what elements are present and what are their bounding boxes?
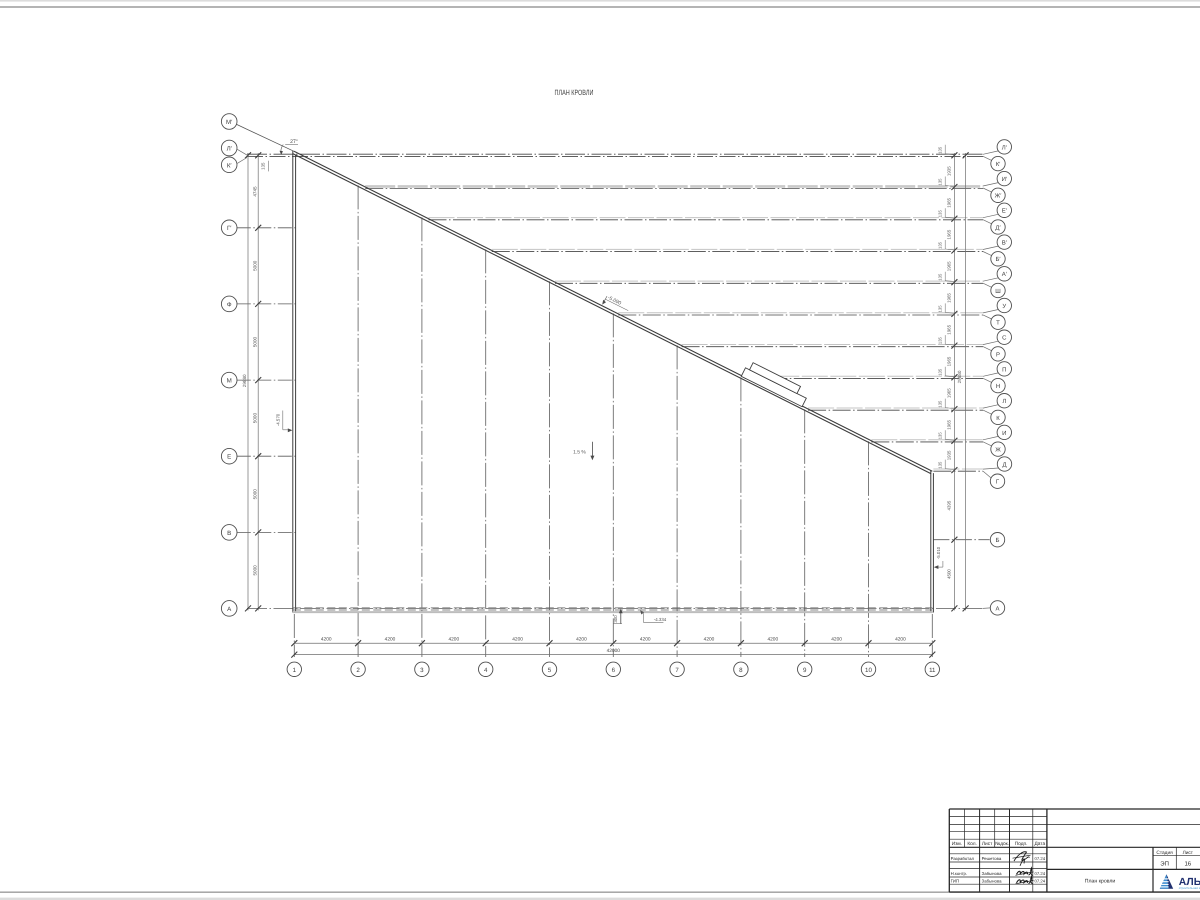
svg-text:1935: 1935 bbox=[947, 166, 952, 176]
svg-text:Н.контр.: Н.контр. bbox=[951, 871, 968, 876]
svg-text:Изм.: Изм. bbox=[952, 841, 962, 847]
svg-text:5: 5 bbox=[548, 667, 552, 674]
svg-text:Д′: Д′ bbox=[995, 224, 1001, 231]
svg-text:4200: 4200 bbox=[767, 636, 778, 642]
svg-text:Е: Е bbox=[227, 454, 231, 461]
svg-text:5000: 5000 bbox=[252, 565, 257, 576]
svg-text:1965: 1965 bbox=[947, 197, 952, 207]
svg-text:Д: Д bbox=[1002, 461, 1006, 468]
svg-text:ПЛАН КРОВЛИ: ПЛАН КРОВЛИ bbox=[555, 88, 594, 97]
svg-text:строительная компания: строительная компания bbox=[1179, 886, 1200, 890]
svg-text:4200: 4200 bbox=[448, 636, 459, 642]
svg-text:135: 135 bbox=[938, 178, 943, 186]
svg-text:Н: Н bbox=[996, 383, 1000, 390]
svg-text:-4.570: -4.570 bbox=[275, 413, 280, 426]
svg-text:Забынова: Забынова bbox=[982, 871, 1003, 876]
svg-text:Е′: Е′ bbox=[1002, 208, 1008, 215]
svg-text:135: 135 bbox=[938, 305, 943, 313]
svg-text:Стадия: Стадия bbox=[1156, 850, 1173, 856]
svg-text:11: 11 bbox=[929, 667, 936, 674]
svg-text:4200: 4200 bbox=[640, 636, 651, 642]
svg-text:П: П bbox=[1002, 366, 1006, 373]
svg-text:ЭП: ЭП bbox=[1160, 861, 1169, 868]
svg-text:135: 135 bbox=[261, 162, 266, 170]
svg-text:135: 135 bbox=[938, 336, 943, 344]
svg-text:135: 135 bbox=[938, 146, 943, 154]
svg-text:1965: 1965 bbox=[947, 293, 952, 303]
svg-text:9: 9 bbox=[803, 667, 807, 674]
svg-text:1935: 1935 bbox=[947, 450, 952, 460]
svg-text:М′: М′ bbox=[226, 119, 233, 126]
svg-text:Лист: Лист bbox=[1183, 850, 1194, 856]
svg-text:Б′: Б′ bbox=[995, 256, 1001, 263]
svg-text:Разработал: Разработал bbox=[951, 856, 975, 861]
svg-text:6: 6 bbox=[612, 667, 616, 674]
svg-text:1965: 1965 bbox=[947, 356, 952, 366]
svg-text:К: К bbox=[996, 415, 1000, 422]
svg-text:1965: 1965 bbox=[947, 388, 952, 398]
svg-text:42000: 42000 bbox=[607, 648, 621, 654]
svg-text:5000: 5000 bbox=[252, 336, 257, 347]
svg-text:Р: Р bbox=[996, 351, 1000, 358]
svg-text:135: 135 bbox=[938, 210, 943, 218]
svg-text:4200: 4200 bbox=[576, 636, 587, 642]
svg-text:4200: 4200 bbox=[831, 636, 842, 642]
svg-text:4: 4 bbox=[484, 667, 488, 674]
svg-text:4200: 4200 bbox=[704, 636, 715, 642]
svg-text:Ф: Ф bbox=[227, 301, 232, 308]
svg-text:135: 135 bbox=[938, 400, 943, 408]
svg-text:А: А bbox=[995, 605, 999, 612]
svg-text:Ж′: Ж′ bbox=[995, 193, 1003, 200]
svg-text:135: 135 bbox=[938, 432, 943, 440]
svg-text:135: 135 bbox=[938, 368, 943, 376]
svg-text:В: В bbox=[227, 530, 231, 537]
svg-text:Ш: Ш bbox=[995, 288, 1001, 295]
svg-text:А′: А′ bbox=[1002, 271, 1008, 278]
svg-text:7: 7 bbox=[675, 667, 679, 674]
svg-text:4395: 4395 bbox=[947, 500, 952, 510]
svg-text:07.24: 07.24 bbox=[1035, 879, 1046, 884]
svg-text:10: 10 bbox=[865, 667, 872, 674]
svg-text:Л′: Л′ bbox=[1002, 144, 1008, 151]
svg-text:Лист: Лист bbox=[982, 841, 993, 847]
svg-text:1965: 1965 bbox=[947, 324, 952, 334]
svg-text:4200: 4200 bbox=[385, 636, 396, 642]
svg-text:135: 135 bbox=[938, 461, 943, 469]
svg-text:К′: К′ bbox=[227, 162, 233, 169]
svg-text:Л′: Л′ bbox=[227, 146, 233, 153]
svg-text:ГИП: ГИП bbox=[951, 879, 960, 884]
svg-text:-5.010: -5.010 bbox=[936, 546, 941, 559]
svg-text:135: 135 bbox=[938, 241, 943, 249]
svg-text:07.24: 07.24 bbox=[1035, 871, 1046, 876]
svg-text:-4.334: -4.334 bbox=[654, 617, 667, 622]
svg-text:И: И bbox=[1002, 430, 1006, 437]
svg-text:5000: 5000 bbox=[252, 489, 257, 500]
svg-text:№док.: №док. bbox=[995, 841, 1009, 847]
svg-text:29880: 29880 bbox=[957, 370, 962, 383]
svg-text:5000: 5000 bbox=[252, 413, 257, 424]
svg-text:План кровли: План кровли bbox=[1085, 878, 1116, 884]
svg-text:Дата: Дата bbox=[1034, 841, 1045, 847]
svg-text:М: М bbox=[227, 377, 232, 384]
svg-text:1965: 1965 bbox=[947, 419, 952, 429]
svg-text:1.5 %: 1.5 % bbox=[573, 450, 586, 456]
svg-text:4200: 4200 bbox=[321, 636, 332, 642]
svg-text:Л: Л bbox=[1002, 398, 1006, 405]
svg-text:300: 300 bbox=[613, 615, 618, 623]
svg-text:И′: И′ bbox=[1002, 176, 1008, 183]
svg-text:Ж: Ж bbox=[995, 447, 1001, 454]
svg-text:5000: 5000 bbox=[252, 260, 257, 271]
svg-text:1: 1 bbox=[293, 667, 297, 674]
svg-text:4500: 4500 bbox=[947, 569, 952, 579]
svg-text:У: У bbox=[1002, 303, 1006, 310]
svg-text:Т: Т bbox=[996, 320, 1000, 327]
svg-text:4745: 4745 bbox=[252, 186, 257, 197]
svg-text:С: С bbox=[1002, 335, 1007, 342]
svg-text:8: 8 bbox=[739, 667, 743, 674]
svg-text:2: 2 bbox=[356, 667, 360, 674]
svg-text:Забынова: Забынова bbox=[982, 879, 1003, 884]
svg-text:4200: 4200 bbox=[895, 636, 906, 642]
svg-text:135: 135 bbox=[938, 273, 943, 281]
svg-text:Подп.: Подп. bbox=[1015, 841, 1028, 847]
svg-text:В′: В′ bbox=[1002, 240, 1008, 247]
svg-text:3: 3 bbox=[420, 667, 424, 674]
svg-text:29880: 29880 bbox=[242, 374, 247, 387]
svg-text:Кол.: Кол. bbox=[967, 841, 977, 847]
svg-text:4200: 4200 bbox=[512, 636, 523, 642]
svg-text:Решетова: Решетова bbox=[982, 856, 1002, 861]
svg-text:1965: 1965 bbox=[947, 229, 952, 239]
svg-text:Б: Б bbox=[996, 537, 1000, 544]
svg-text:1965: 1965 bbox=[947, 261, 952, 271]
svg-text:16: 16 bbox=[1184, 861, 1191, 868]
svg-text:07.24: 07.24 bbox=[1035, 856, 1046, 861]
